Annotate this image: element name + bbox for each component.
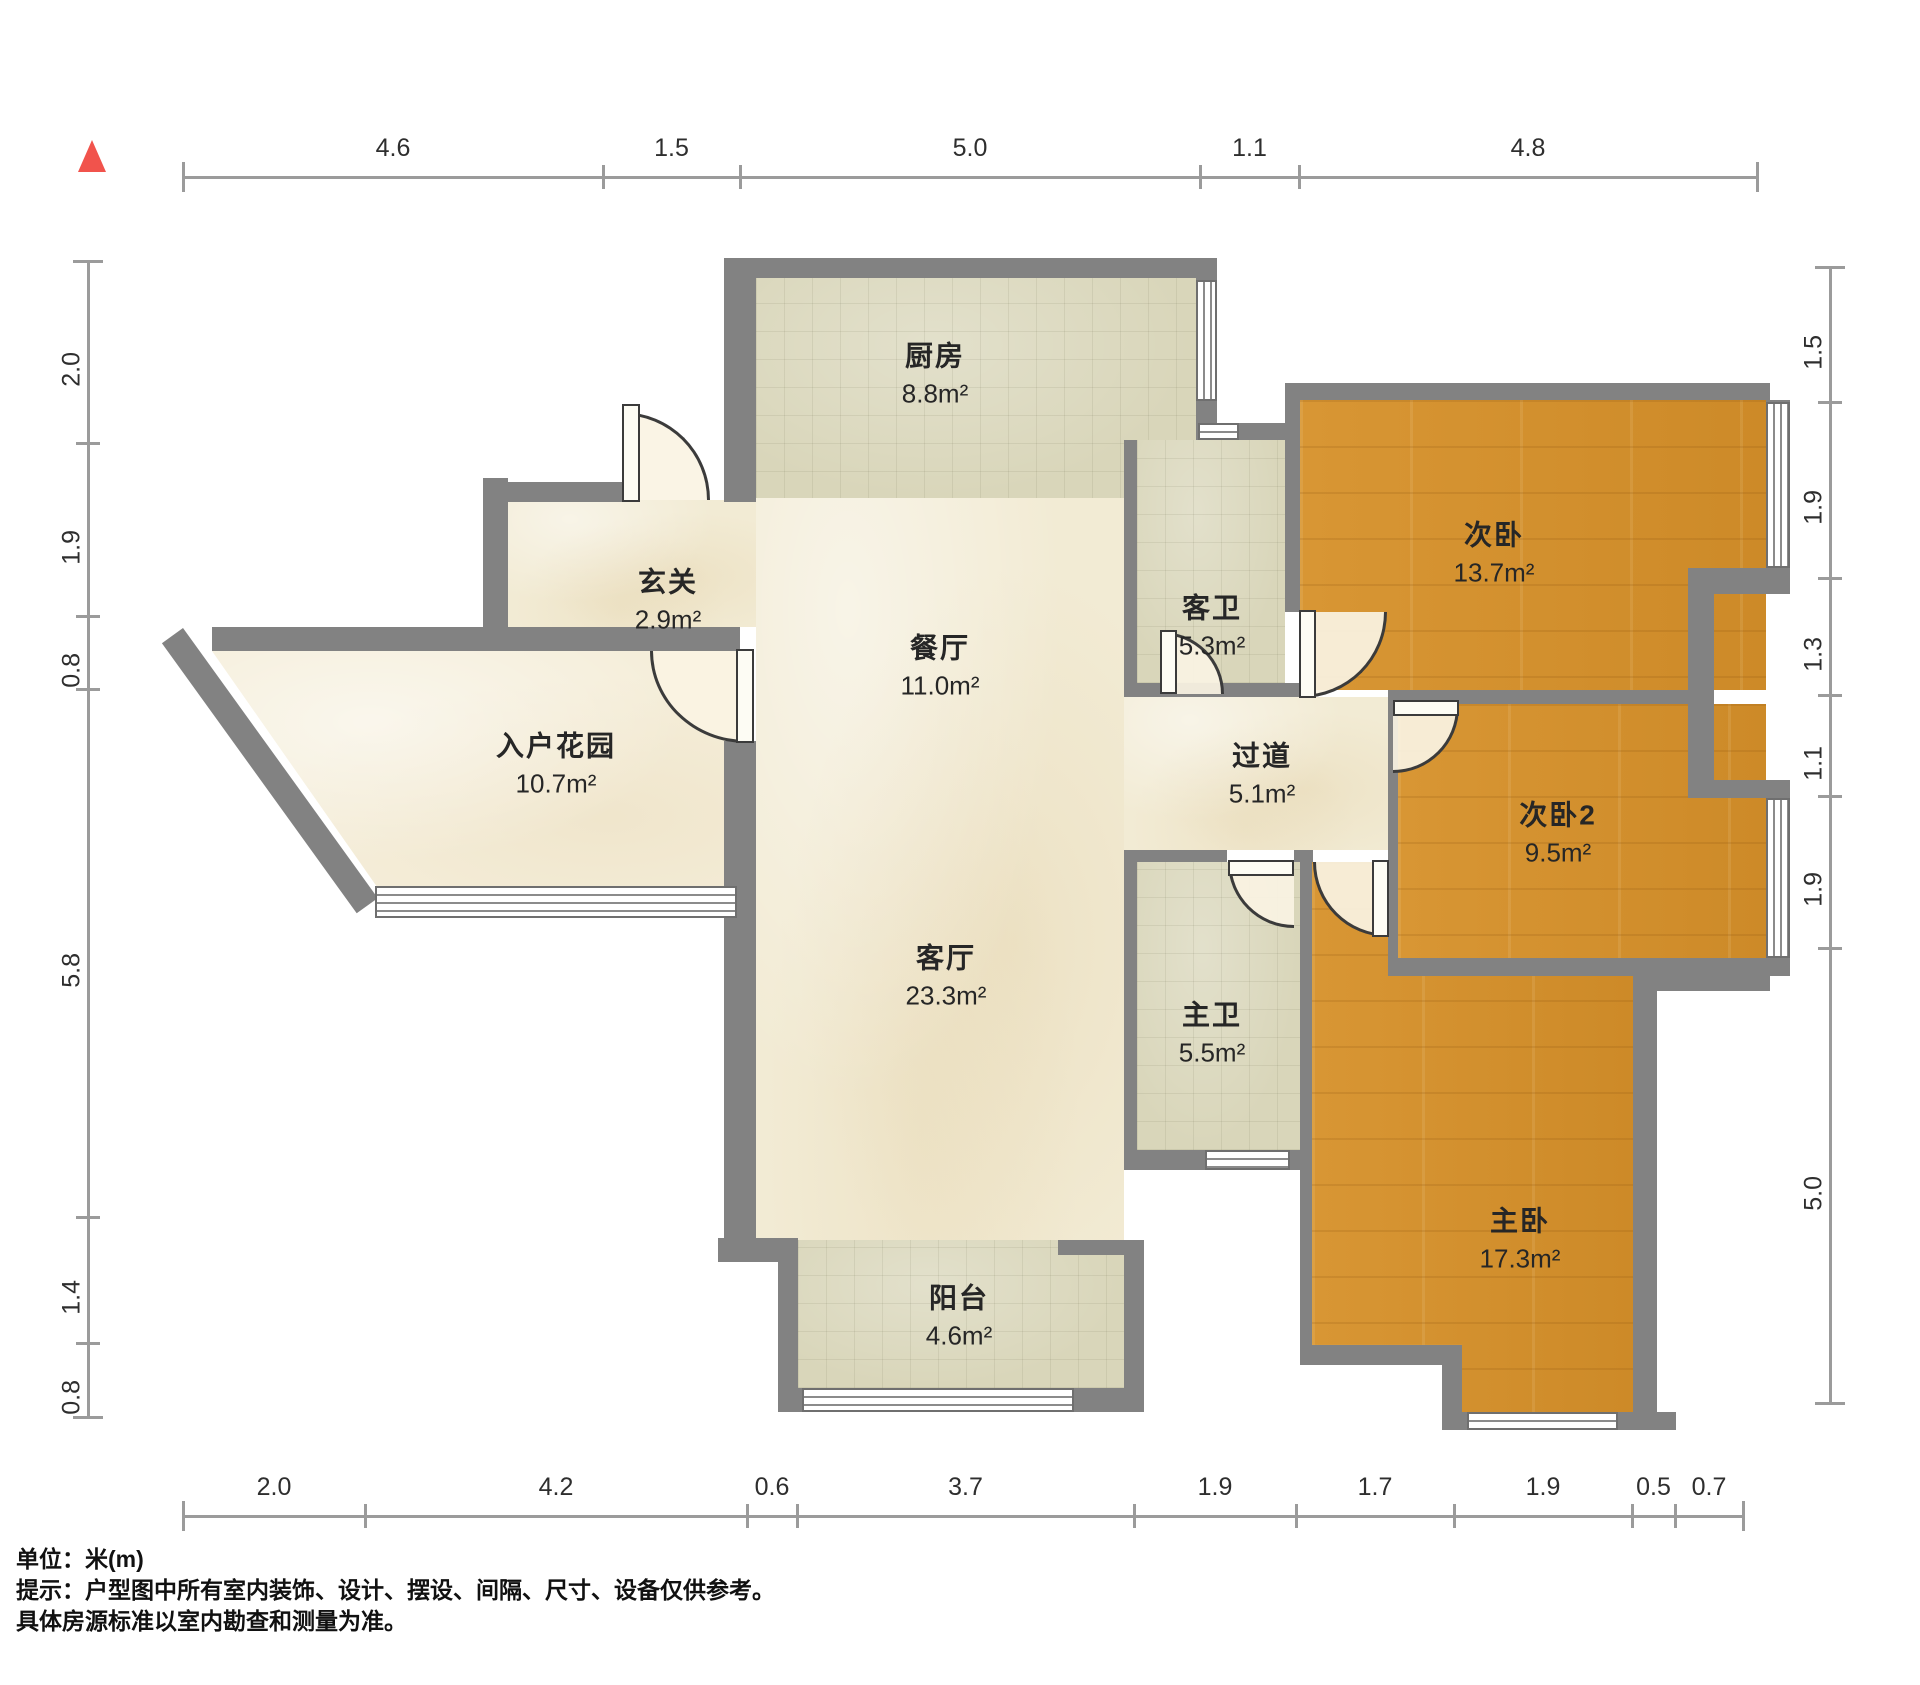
dim-tick-bottom-7: [1631, 1504, 1634, 1528]
dim-tick-top-2: [739, 165, 742, 189]
wall-dining-right: [1124, 440, 1137, 697]
dim-label-right-2: 1.3: [1800, 637, 1829, 672]
dim-label-top-4: 4.8: [1511, 134, 1546, 163]
dim-tick-right-3: [1818, 694, 1842, 697]
bedroom2-door-leaf: [1299, 610, 1316, 698]
wall-bedroom2-left: [1285, 400, 1300, 612]
dim-label-bottom-7: 0.5: [1636, 1473, 1671, 1502]
guest-bath-door-leaf: [1160, 630, 1177, 694]
north-arrow-icon: [78, 140, 106, 172]
dim-label-bottom-6: 1.9: [1526, 1473, 1561, 1502]
wall-master-left: [1300, 862, 1312, 1345]
entry-door-leaf: [622, 404, 640, 502]
wall-bedroom3-step: [1633, 976, 1770, 991]
dim-label-left-4: 1.4: [58, 1280, 87, 1315]
dim-tick-bottom-1: [364, 1504, 367, 1528]
wall-garden-top: [212, 627, 740, 651]
wall-living-step: [718, 1238, 798, 1262]
dim-tick-top-4: [1298, 165, 1301, 189]
dim-tick-bottom-9: [1742, 1501, 1745, 1531]
floor-balcony: [798, 1240, 1124, 1388]
dim-label-right-0: 1.5: [1800, 335, 1829, 370]
wall-bedroom2-top: [1285, 383, 1770, 400]
dim-label-bottom-0: 2.0: [257, 1473, 292, 1502]
wall-kitchen-top: [740, 258, 1217, 278]
dim-tick-right-5: [1818, 947, 1842, 950]
dim-tick-bottom-5: [1295, 1504, 1298, 1528]
wall-notch-bottom: [1688, 780, 1790, 798]
dim-label-bottom-8: 0.7: [1692, 1473, 1727, 1502]
dim-tick-left-4: [76, 1216, 100, 1219]
dim-tick-right-2: [1818, 577, 1842, 580]
footer-unit-line: 单位：米(m): [16, 1544, 775, 1575]
master-bath-door-leaf: [1228, 860, 1294, 876]
dim-tick-left-0: [73, 260, 103, 263]
dim-label-top-0: 4.6: [376, 134, 411, 163]
wall-master-bath-top: [1124, 850, 1227, 862]
dim-tick-top-1: [602, 165, 605, 189]
window-balcony: [802, 1388, 1074, 1412]
dim-tick-left-6: [73, 1416, 103, 1419]
wall-balcony-right: [1124, 1240, 1144, 1388]
footer-disclaimer: 单位：米(m) 提示：户型图中所有室内装饰、设计、摆设、间隔、尺寸、设备仅供参考…: [16, 1544, 775, 1637]
wall-living-left: [724, 741, 756, 1238]
dim-line-bottom: [183, 1515, 1743, 1518]
wall-master-bath-left: [1124, 850, 1137, 1150]
dim-label-left-5: 0.8: [58, 1380, 87, 1415]
window-bedroom3: [1766, 798, 1790, 958]
dim-label-top-1: 1.5: [654, 134, 689, 163]
window-master-bath: [1205, 1150, 1290, 1170]
dim-tick-bottom-3: [796, 1504, 799, 1528]
dim-label-bottom-4: 1.9: [1198, 1473, 1233, 1502]
footer-note-line: 具体房源标准以室内勘查和测量为准。: [16, 1606, 775, 1637]
window-master-bedroom: [1467, 1412, 1618, 1430]
dim-label-right-3: 1.1: [1800, 746, 1829, 781]
dim-tick-left-2: [76, 615, 100, 618]
dim-label-right-1: 1.9: [1800, 490, 1829, 525]
dim-tick-right-1: [1818, 401, 1842, 404]
dim-label-bottom-5: 1.7: [1358, 1473, 1393, 1502]
dim-label-bottom-3: 3.7: [948, 1473, 983, 1502]
dim-tick-bottom-4: [1133, 1504, 1136, 1528]
dim-label-left-2: 0.8: [58, 653, 87, 688]
dim-tick-bottom-8: [1674, 1504, 1677, 1528]
floor-plan-canvas: 厨房8.8m²玄关2.9m²餐厅11.0m²客卫5.3m²次卧13.7m²入户花…: [0, 0, 1920, 1685]
floor-corridor: [1124, 697, 1388, 850]
floor-entry: [508, 500, 756, 627]
dim-label-top-2: 5.0: [953, 134, 988, 163]
wall-kitchen-left: [724, 258, 756, 502]
dim-label-left-3: 5.8: [58, 953, 87, 988]
dim-tick-top-3: [1199, 165, 1202, 189]
window-entry-garden: [375, 886, 737, 918]
dim-tick-right-4: [1818, 795, 1842, 798]
garden-door-leaf: [736, 649, 754, 743]
wall-master-step-h: [1300, 1345, 1462, 1365]
dim-tick-bottom-2: [746, 1504, 749, 1528]
dim-tick-top-0: [182, 162, 185, 192]
dim-tick-right-6: [1815, 1402, 1845, 1405]
dim-tick-bottom-0: [182, 1501, 185, 1531]
dim-label-right-5: 5.0: [1800, 1176, 1829, 1211]
dim-tick-left-5: [76, 1342, 100, 1345]
dim-label-bottom-1: 4.2: [539, 1473, 574, 1502]
wall-notch-left: [1688, 594, 1714, 780]
wall-balcony-left: [778, 1262, 798, 1388]
footer-tip-line: 提示：户型图中所有室内装饰、设计、摆设、间隔、尺寸、设备仅供参考。: [16, 1575, 775, 1606]
window-guest-bath: [1198, 423, 1239, 440]
wall-master-right: [1633, 991, 1657, 1430]
dim-tick-left-3: [76, 688, 100, 691]
wall-notch-top: [1688, 568, 1790, 594]
window-bedroom2: [1766, 402, 1790, 568]
dim-line-top: [183, 176, 1757, 179]
dim-label-left-0: 2.0: [58, 352, 87, 387]
wall-door-pier: [1294, 850, 1313, 862]
dim-tick-bottom-6: [1453, 1504, 1456, 1528]
wall-entry-left: [483, 478, 508, 635]
dim-tick-left-1: [76, 442, 100, 445]
window-kitchen-side: [1196, 280, 1217, 401]
dim-line-right: [1829, 267, 1832, 1403]
bedroom3-door-leaf: [1393, 700, 1459, 716]
dim-tick-right-0: [1815, 266, 1845, 269]
floor-dining-living: [756, 498, 1124, 1240]
dim-label-bottom-2: 0.6: [755, 1473, 790, 1502]
dim-label-top-3: 1.1: [1232, 134, 1267, 163]
dim-line-left: [87, 261, 90, 1417]
wall-bedroom3-bottom: [1388, 958, 1770, 976]
dim-tick-top-5: [1756, 162, 1759, 192]
dim-label-left-1: 1.9: [58, 530, 87, 565]
wall-master-step-v: [1442, 1345, 1462, 1412]
dim-label-right-4: 1.9: [1800, 872, 1829, 907]
master-bedroom-door-leaf: [1372, 860, 1389, 937]
